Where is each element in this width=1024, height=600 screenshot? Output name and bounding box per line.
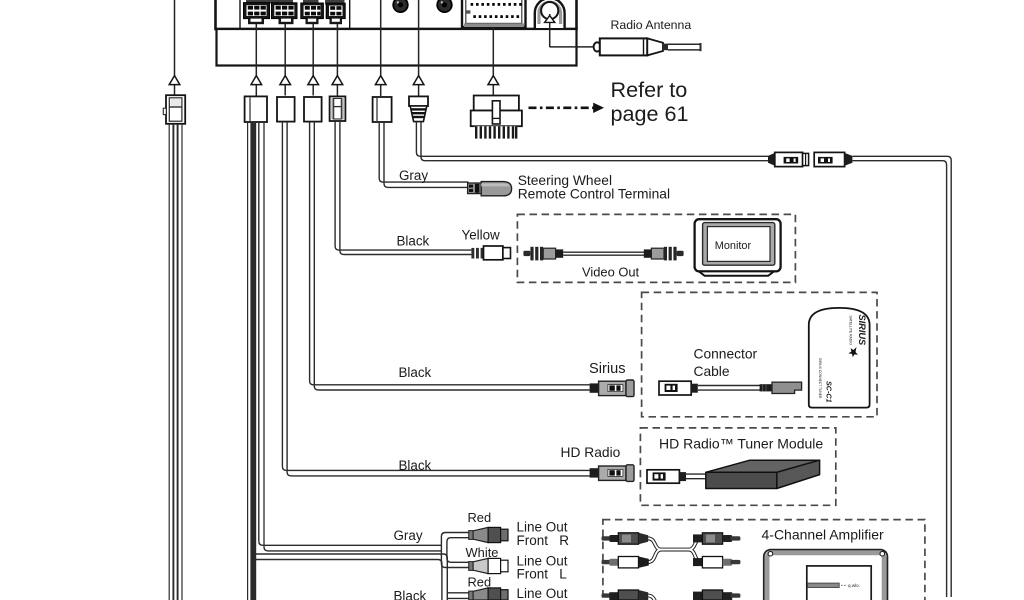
svg-text:Black: Black	[394, 589, 427, 600]
svg-text:page 61: page 61	[611, 101, 689, 126]
svg-text:Red: Red	[468, 510, 492, 525]
svg-text:Gray: Gray	[399, 168, 428, 183]
svg-text:SATELLITE RADIO: SATELLITE RADIO	[849, 316, 853, 346]
svg-text:HD Radio™ Tuner Module: HD Radio™ Tuner Module	[659, 435, 823, 451]
svg-text:Video Out: Video Out	[582, 264, 640, 279]
svg-text:4-Channel Amplifier: 4-Channel Amplifier	[762, 526, 885, 542]
svg-text:Front R: Front R	[517, 533, 570, 548]
svg-text:Yellow: Yellow	[462, 228, 501, 243]
svg-text:Sirius: Sirius	[589, 361, 626, 377]
svg-text:Black: Black	[399, 458, 432, 473]
svg-text:Radio Antenna: Radio Antenna	[611, 18, 692, 32]
svg-text:Cable: Cable	[694, 364, 730, 379]
svg-text:Front L: Front L	[517, 567, 568, 582]
svg-text:Line Out: Line Out	[517, 586, 568, 600]
svg-text:Gray: Gray	[394, 528, 423, 543]
svg-text:SIRIUS CONNECT TUNER: SIRIUS CONNECT TUNER	[818, 358, 822, 399]
svg-text:Connector: Connector	[694, 347, 758, 362]
svg-text:Black: Black	[397, 234, 430, 249]
svg-text:SC-C1: SC-C1	[825, 381, 834, 403]
svg-text:SIRIUS: SIRIUS	[857, 315, 867, 347]
svg-text:Black: Black	[399, 365, 432, 380]
svg-text:HD Radio: HD Radio	[561, 445, 621, 460]
svg-text:q.wlo.: q.wlo.	[848, 583, 860, 588]
svg-text:Refer to: Refer to	[611, 77, 688, 102]
svg-text:Remote Control Terminal: Remote Control Terminal	[518, 187, 670, 202]
svg-text:Monitor: Monitor	[715, 240, 752, 252]
